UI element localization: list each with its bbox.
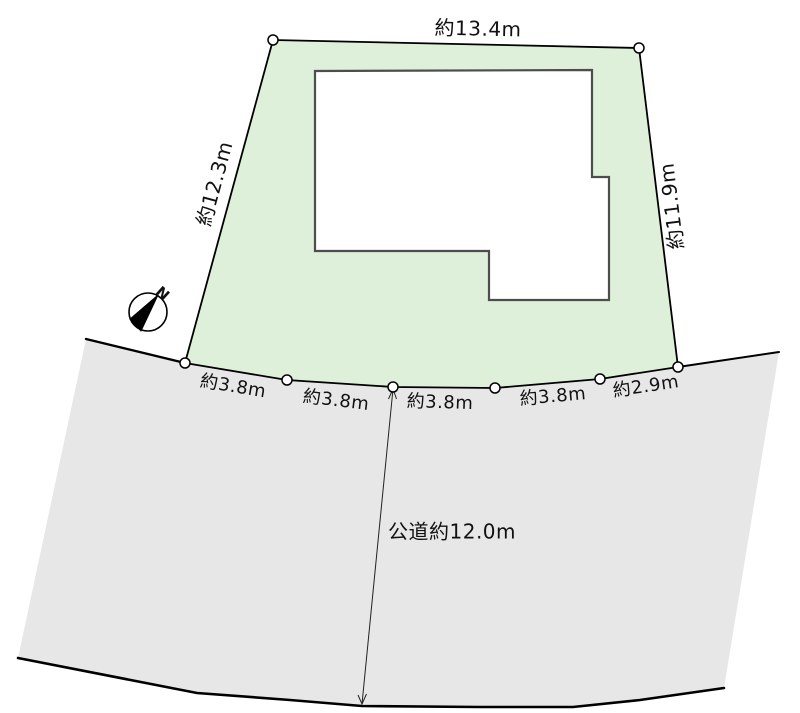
road-width-label: 公道約12.0m (388, 520, 516, 544)
boundary-marker (634, 43, 644, 53)
frontage-dimension-3: 約3.8m (406, 391, 473, 414)
site-plan-diagram: N 約13.4m 約12.3m 約11.9m 約3.8m 約3.8m 約3.8m… (0, 0, 800, 713)
site-plan-canvas: N 約13.4m 約12.3m 約11.9m 約3.8m 約3.8m 約3.8m… (0, 0, 800, 713)
boundary-marker (595, 374, 605, 384)
boundary-marker (490, 383, 500, 393)
top-edge-dimension: 約13.4m (434, 16, 521, 42)
boundary-marker (388, 382, 398, 392)
boundary-marker (180, 358, 190, 368)
boundary-marker (673, 362, 683, 372)
boundary-marker (282, 375, 292, 385)
boundary-marker (268, 35, 278, 45)
compass-icon: N (129, 283, 173, 331)
